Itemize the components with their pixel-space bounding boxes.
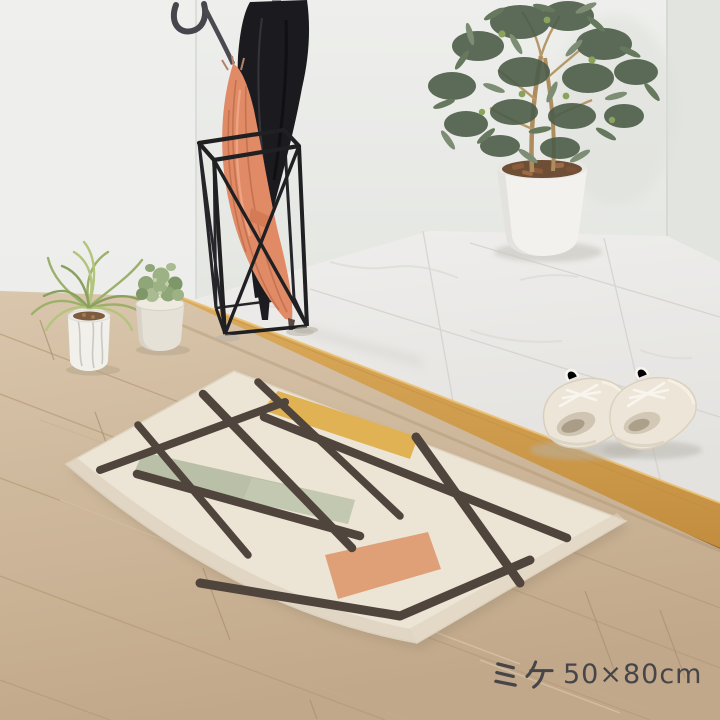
kana-mi-glyph xyxy=(492,660,521,689)
caption-kana-mike xyxy=(492,660,554,689)
caption-size-text: 50×80cm xyxy=(563,659,702,690)
scene-canvas xyxy=(0,0,720,720)
product-caption: 50×80cm xyxy=(492,659,702,690)
entryway-product-photo: 50×80cm xyxy=(0,0,720,720)
kana-ke-glyph xyxy=(525,660,554,689)
